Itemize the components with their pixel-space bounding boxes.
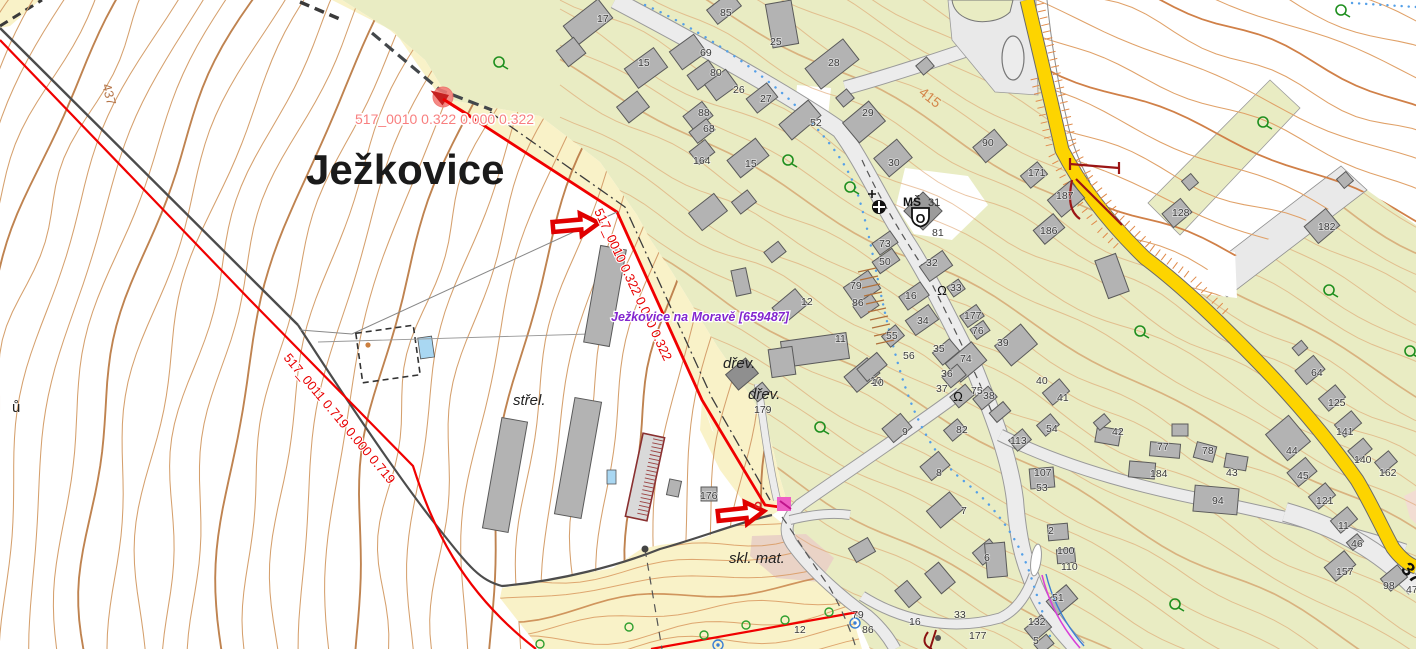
svg-text:90: 90 [982, 137, 994, 149]
svg-text:132: 132 [1028, 616, 1046, 628]
svg-text:34: 34 [917, 315, 929, 327]
svg-text:42: 42 [1112, 426, 1124, 438]
svg-text:186: 186 [1040, 225, 1058, 237]
svg-text:38: 38 [983, 390, 995, 402]
svg-text:179: 179 [754, 404, 772, 416]
svg-text:184: 184 [1150, 468, 1168, 480]
svg-text:517_0010 0.322 0.000 0.322: 517_0010 0.322 0.000 0.322 [355, 111, 534, 127]
svg-text:176: 176 [700, 490, 718, 502]
svg-text:50: 50 [879, 256, 891, 268]
svg-text:Ježkovice: Ježkovice [306, 146, 504, 193]
svg-text:16: 16 [905, 290, 917, 302]
svg-text:125: 125 [1328, 397, 1346, 409]
svg-text:82: 82 [956, 424, 968, 436]
svg-text:177: 177 [969, 630, 987, 642]
svg-text:31: 31 [928, 197, 940, 209]
svg-text:39: 39 [997, 337, 1009, 349]
svg-text:10: 10 [872, 377, 884, 389]
svg-text:dřev.: dřev. [723, 355, 755, 372]
svg-text:55: 55 [886, 330, 898, 342]
svg-text:5: 5 [1033, 635, 1039, 647]
svg-text:36: 36 [941, 368, 953, 380]
svg-text:68: 68 [703, 123, 715, 135]
svg-text:86: 86 [862, 624, 874, 636]
svg-text:45: 45 [1297, 470, 1309, 482]
svg-text:140: 140 [1354, 454, 1372, 466]
svg-text:94: 94 [1212, 495, 1224, 507]
svg-text:69: 69 [700, 47, 712, 59]
svg-text:56: 56 [903, 350, 915, 362]
svg-text:16: 16 [909, 616, 921, 628]
svg-text:75: 75 [971, 385, 983, 397]
svg-text:30: 30 [888, 157, 900, 169]
svg-text:110: 110 [1061, 561, 1078, 573]
svg-text:46: 46 [1351, 538, 1363, 550]
svg-text:52: 52 [810, 117, 822, 129]
svg-text:187: 187 [1056, 190, 1074, 202]
svg-text:171: 171 [1028, 167, 1046, 179]
svg-text:2: 2 [1048, 525, 1054, 537]
svg-text:11: 11 [1338, 520, 1349, 532]
svg-text:skl. mat.: skl. mat. [729, 550, 785, 567]
svg-text:164: 164 [693, 155, 711, 167]
svg-text:121: 121 [1316, 495, 1334, 507]
svg-text:107: 107 [1034, 467, 1052, 479]
svg-text:7: 7 [961, 505, 967, 517]
svg-text:29: 29 [862, 107, 874, 119]
svg-text:25: 25 [770, 36, 782, 48]
svg-text:54: 54 [1046, 423, 1058, 435]
svg-text:88: 88 [698, 107, 710, 119]
svg-text:17: 17 [597, 13, 609, 25]
svg-text:dřev.: dřev. [748, 386, 780, 403]
svg-text:177: 177 [964, 310, 982, 322]
svg-text:15: 15 [745, 158, 757, 170]
svg-text:74: 74 [960, 353, 972, 365]
svg-text:141: 141 [1336, 426, 1354, 438]
svg-text:37: 37 [936, 383, 948, 395]
svg-text:64: 64 [1311, 367, 1323, 379]
svg-text:53: 53 [1036, 482, 1048, 494]
svg-text:43: 43 [1226, 467, 1238, 479]
svg-text:8: 8 [936, 467, 942, 479]
svg-text:15: 15 [638, 57, 650, 69]
svg-text:9: 9 [902, 426, 908, 438]
svg-text:12: 12 [801, 296, 813, 308]
svg-text:MŠ: MŠ [903, 194, 921, 209]
svg-text:27: 27 [760, 93, 772, 105]
svg-text:41: 41 [1057, 392, 1069, 404]
svg-text:Ω: Ω [953, 389, 963, 404]
svg-text:47: 47 [1406, 584, 1416, 596]
svg-text:79: 79 [850, 280, 862, 292]
svg-text:182: 182 [1318, 221, 1336, 233]
svg-text:12: 12 [794, 624, 806, 636]
svg-text:28: 28 [828, 57, 840, 69]
svg-text:32: 32 [926, 257, 938, 269]
svg-text:11: 11 [835, 333, 846, 345]
svg-text:100: 100 [1057, 545, 1075, 557]
svg-text:O: O [916, 212, 926, 226]
svg-text:Ježkovice na Moravě [659487]: Ježkovice na Moravě [659487] [611, 310, 790, 324]
svg-text:33: 33 [950, 282, 962, 294]
svg-text:80: 80 [710, 67, 722, 79]
svg-text:157: 157 [1336, 566, 1354, 578]
svg-text:33: 33 [954, 609, 966, 621]
svg-text:98: 98 [1383, 580, 1395, 592]
svg-text:střel.: střel. [513, 392, 546, 409]
svg-text:40: 40 [1036, 375, 1048, 387]
svg-text:162: 162 [1379, 467, 1397, 479]
svg-text:76: 76 [972, 325, 984, 337]
svg-text:113: 113 [1010, 435, 1027, 447]
svg-text:128: 128 [1172, 207, 1190, 219]
svg-text:ů: ů [12, 399, 20, 416]
svg-text:44: 44 [1286, 445, 1298, 457]
svg-text:Ω: Ω [937, 283, 947, 298]
svg-text:6: 6 [984, 552, 990, 564]
svg-text:86: 86 [852, 297, 864, 309]
svg-text:35: 35 [933, 343, 945, 355]
svg-text:51: 51 [1052, 592, 1064, 604]
svg-text:73: 73 [879, 238, 891, 250]
svg-text:79: 79 [852, 609, 864, 621]
svg-text:85: 85 [720, 7, 732, 19]
svg-text:78: 78 [1202, 445, 1214, 457]
svg-text:77: 77 [1157, 441, 1169, 453]
svg-text:26: 26 [733, 84, 745, 96]
svg-text:81: 81 [932, 227, 944, 239]
